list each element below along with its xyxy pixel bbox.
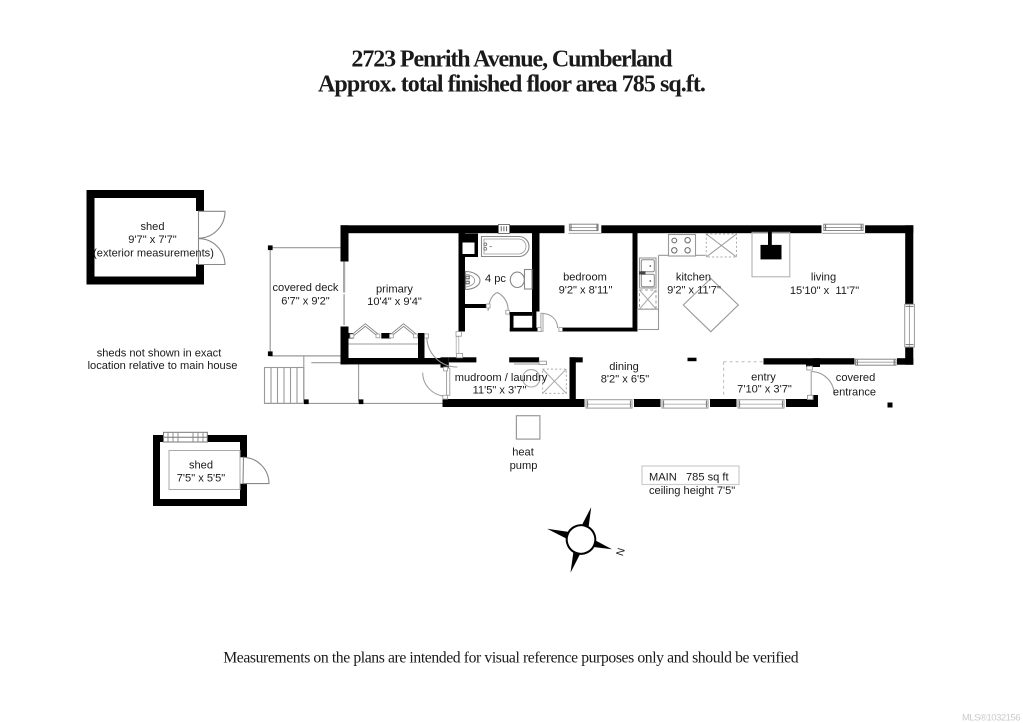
svg-text:ceiling height 7'5": ceiling height 7'5" xyxy=(649,485,735,497)
svg-text:15'10" x 11'7": 15'10" x 11'7" xyxy=(790,285,859,297)
svg-text:10'4" x 9'4": 10'4" x 9'4" xyxy=(367,296,422,308)
svg-text:MLS®1032156: MLS®1032156 xyxy=(962,713,1020,723)
svg-text:(exterior measurements): (exterior measurements) xyxy=(93,247,214,259)
svg-text:shed: shed xyxy=(189,460,213,472)
svg-text:covered: covered xyxy=(836,372,875,384)
svg-text:4 pc: 4 pc xyxy=(485,273,506,285)
svg-text:heat: heat xyxy=(512,447,534,459)
svg-text:6'7" x 9'2": 6'7" x 9'2" xyxy=(281,296,330,308)
svg-text:bedroom: bedroom xyxy=(563,271,607,283)
svg-text:primary: primary xyxy=(376,283,413,295)
svg-text:7'10" x 3'7": 7'10" x 3'7" xyxy=(737,384,792,396)
svg-text:shed: shed xyxy=(140,221,164,233)
svg-text:9'2" x 8'11": 9'2" x 8'11" xyxy=(559,285,613,297)
svg-text:Measurements on the plans are: Measurements on the plans are intended f… xyxy=(223,650,799,667)
svg-text:covered deck: covered deck xyxy=(273,282,339,294)
svg-text:pump: pump xyxy=(510,460,538,472)
svg-text:mudroom / laundry: mudroom / laundry xyxy=(455,372,548,384)
svg-text:11'5" x 3'7": 11'5" x 3'7" xyxy=(473,385,527,397)
svg-text:2723 Penrith Avenue, Cumberlan: 2723 Penrith Avenue, Cumberland xyxy=(351,47,673,73)
svg-text:MAIN 785 sq ft: MAIN 785 sq ft xyxy=(649,472,729,484)
svg-text:dining: dining xyxy=(609,361,639,373)
svg-text:entry: entry xyxy=(751,371,776,383)
svg-text:Approx. total finished floor a: Approx. total finished floor area 785 sq… xyxy=(318,72,705,98)
svg-text:7'5" x 5'5": 7'5" x 5'5" xyxy=(177,473,226,485)
svg-text:8'2" x 6'5": 8'2" x 6'5" xyxy=(601,373,650,385)
svg-text:entrance: entrance xyxy=(833,387,876,399)
svg-text:living: living xyxy=(811,271,836,283)
svg-text:9'7" x 7'7": 9'7" x 7'7" xyxy=(128,234,177,246)
svg-text:sheds not shown in exact: sheds not shown in exact xyxy=(97,348,222,360)
svg-text:location relative to main hous: location relative to main house xyxy=(88,360,238,372)
svg-text:9'2" x 11'7": 9'2" x 11'7" xyxy=(667,285,721,297)
svg-text:kitchen: kitchen xyxy=(676,271,711,283)
